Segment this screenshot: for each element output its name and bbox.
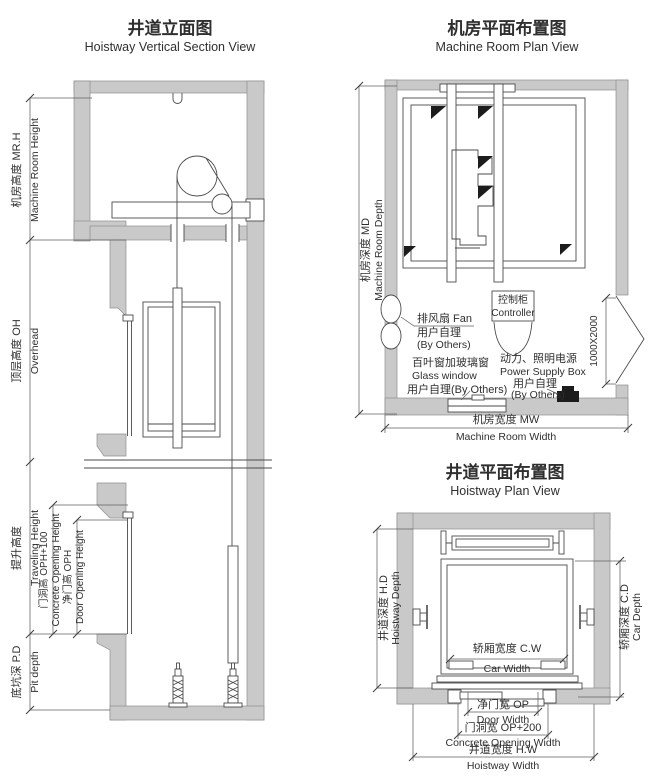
dim-machine-room-depth-zh: 机房深度 MD [358, 218, 372, 282]
landing-door-frames [128, 321, 132, 634]
label-controller-en: Controller [491, 308, 535, 319]
label-fan-note-zh: 用户自理 [417, 325, 461, 339]
exhaust-fan-lower [381, 323, 401, 349]
cwt-rail-bracket-left [441, 531, 446, 554]
door-jamb-right [543, 690, 556, 703]
counterweight [228, 546, 238, 663]
lower-door-lintel [97, 483, 126, 518]
mr-bottom-wall [385, 398, 628, 415]
buffer-base [169, 703, 187, 707]
dim-door-width-zh: 净门宽 OP [477, 697, 529, 711]
lifting-hook [173, 93, 182, 104]
dim-car-depth-en: Car Depth [631, 593, 643, 641]
dim-machine-room-height-en: Machine Room Height [29, 118, 41, 222]
elevator-drawing-sheet: 井道立面图 Hoistway Vertical Section View [0, 0, 650, 780]
shaft-outline-inner [411, 105, 576, 261]
hoistway-plan-drawing [397, 513, 610, 706]
pit-floor [110, 706, 264, 720]
label-power-en: Power Supply Box [500, 366, 587, 378]
upper-door-header [123, 315, 133, 321]
dim-concrete-opening-height-en: Concrete Opening Height [51, 513, 62, 626]
label-glass-window-zh: 百叶窗加玻璃窗 [412, 355, 489, 369]
dim-pit-depth-zh: 底坑深 P.D [9, 645, 23, 698]
cwt-rail-bracket-right [559, 531, 564, 554]
mr-left-wall [385, 80, 397, 415]
dim-machine-room-height-zh: 机房高度 MR.H [9, 132, 23, 207]
door-jamb-left [448, 690, 461, 703]
machine-room-plan-title-en: Machine Room Plan View [436, 40, 580, 54]
controller-door-swing [494, 322, 532, 355]
dim-machine-room-depth-en: Machine Room Depth [373, 199, 385, 301]
hw-right-wall [594, 513, 610, 704]
buffer-stem [177, 663, 180, 669]
car-sling [173, 288, 182, 448]
landing-door-panel-left [460, 692, 502, 699]
buffer-stem [232, 663, 235, 669]
machine-floor-slab [90, 226, 247, 240]
car-guide-rail-left [413, 605, 427, 629]
shaft-right-wall [247, 81, 264, 720]
traction-machine-outline [452, 150, 493, 245]
dim-traveling-height-zh: 提升高度 [9, 526, 23, 570]
dim-overhead-zh: 顶层高度 OH [9, 319, 23, 383]
machine-room-ceiling-slab [74, 81, 264, 93]
louver-glass-window [448, 399, 506, 412]
hoistway-plan: 井道平面布置图 Hoistway Plan View [373, 462, 643, 772]
rail-bracket [413, 609, 420, 625]
dim-pit-depth-en: Pit depth [29, 651, 41, 693]
label-glass-window-en: Glass window [412, 370, 477, 382]
label-power-zh: 动力、照明电源 [500, 351, 577, 365]
mr-right-wall-upper [616, 80, 628, 295]
dim-concrete-opening-height-zh: 门洞高 OPH+100 [37, 531, 50, 608]
dim-overhead-en: Overhead [29, 328, 41, 374]
dim-door-opening-height-zh: 净门高 OPH [61, 550, 74, 604]
upper-door-lintel [110, 240, 126, 316]
machine-room-plan: 机房平面布置图 Machine Room Plan View [355, 18, 644, 443]
landing-sill [432, 683, 582, 689]
dim-concrete-opening-width-zh: 门洞宽 OP+200 [465, 720, 542, 734]
machine-room-left-wall [74, 81, 90, 241]
car-sill [437, 676, 578, 682]
machine-beam-right [494, 84, 503, 282]
car-guide-rail-right [580, 605, 594, 629]
rail-stem [420, 613, 427, 621]
anchor-markers [404, 106, 572, 257]
machine-room-plan-title-zh: 机房平面布置图 [448, 18, 567, 38]
label-power-note-zh: 用户自理 [513, 376, 557, 390]
dim-door-size: 1000X2000 [589, 315, 600, 367]
dim-machine-room-width-zh: 机房宽度 MW [473, 412, 540, 426]
dim-hoistway-width-en: Hoistway Width [467, 760, 540, 772]
dim-door-opening-height-en: Door Opening Height [75, 530, 86, 624]
label-fan-note-en: (By Others) [417, 339, 471, 351]
mr-extension-lines [359, 86, 628, 433]
drawing-svg: 井道立面图 Hoistway Vertical Section View [0, 0, 650, 780]
mr-door-swing [616, 296, 644, 383]
dim-machine-room-width-en: Machine Room Width [456, 431, 557, 443]
rail-bracket [587, 609, 594, 625]
label-fan-zh: 排风扇 Fan [417, 311, 472, 325]
lower-door-header [123, 512, 133, 518]
dim-hoistway-depth-zh: 井道深度 H.D [376, 575, 390, 641]
machine-room-labels: 排风扇 Fan 用户自理 (By Others) 百叶窗加玻璃窗 Glass w… [407, 293, 587, 401]
car-door-post-left [449, 661, 473, 669]
hw-top-wall [397, 513, 610, 529]
section-title-en: Hoistway Vertical Section View [85, 40, 257, 54]
upper-door-sill-bracket [97, 434, 126, 456]
label-controller-zh: 控制柜 [498, 293, 528, 306]
label-glass-note: 用户自理(By Others) [407, 382, 507, 396]
mr-dim-lines [359, 86, 628, 428]
hoistway-section-view: 井道立面图 Hoistway Vertical Section View [9, 18, 272, 720]
section-break-lines [84, 460, 272, 468]
dim-car-depth-zh: 轿厢深度 C.D [617, 584, 631, 650]
buffer-base [224, 703, 242, 707]
traction-sheave [177, 156, 217, 196]
hoistway-plan-title-en: Hoistway Plan View [450, 484, 561, 498]
deflector-sheave [212, 194, 232, 214]
car-buffer [169, 663, 187, 707]
label-power-note-en: (By Others) [511, 389, 565, 401]
counterweight-buffer [224, 663, 242, 707]
dim-car-width-en: Car Width [484, 663, 531, 675]
dim-hoistway-width-zh: 井道宽度 H.W [469, 742, 538, 756]
machine-beam-left [447, 84, 456, 282]
dim-hoistway-depth-en: Hoistway Depth [390, 571, 402, 645]
rope-hole-car [171, 224, 184, 242]
section-dimensions: 机房高度 MR.H Machine Room Height 顶层高度 OH Ov… [9, 94, 128, 714]
car-plan-outline [441, 559, 573, 674]
hoistway-plan-title-zh: 井道平面布置图 [446, 462, 565, 482]
section-title-zh: 井道立面图 [128, 18, 213, 38]
counterweight-plan [452, 536, 553, 550]
rope-hole-cwt [226, 224, 239, 242]
section-drawing [74, 81, 272, 720]
dim-car-width-zh: 轿厢宽度 C.W [473, 641, 542, 655]
rail-stem [580, 613, 587, 621]
